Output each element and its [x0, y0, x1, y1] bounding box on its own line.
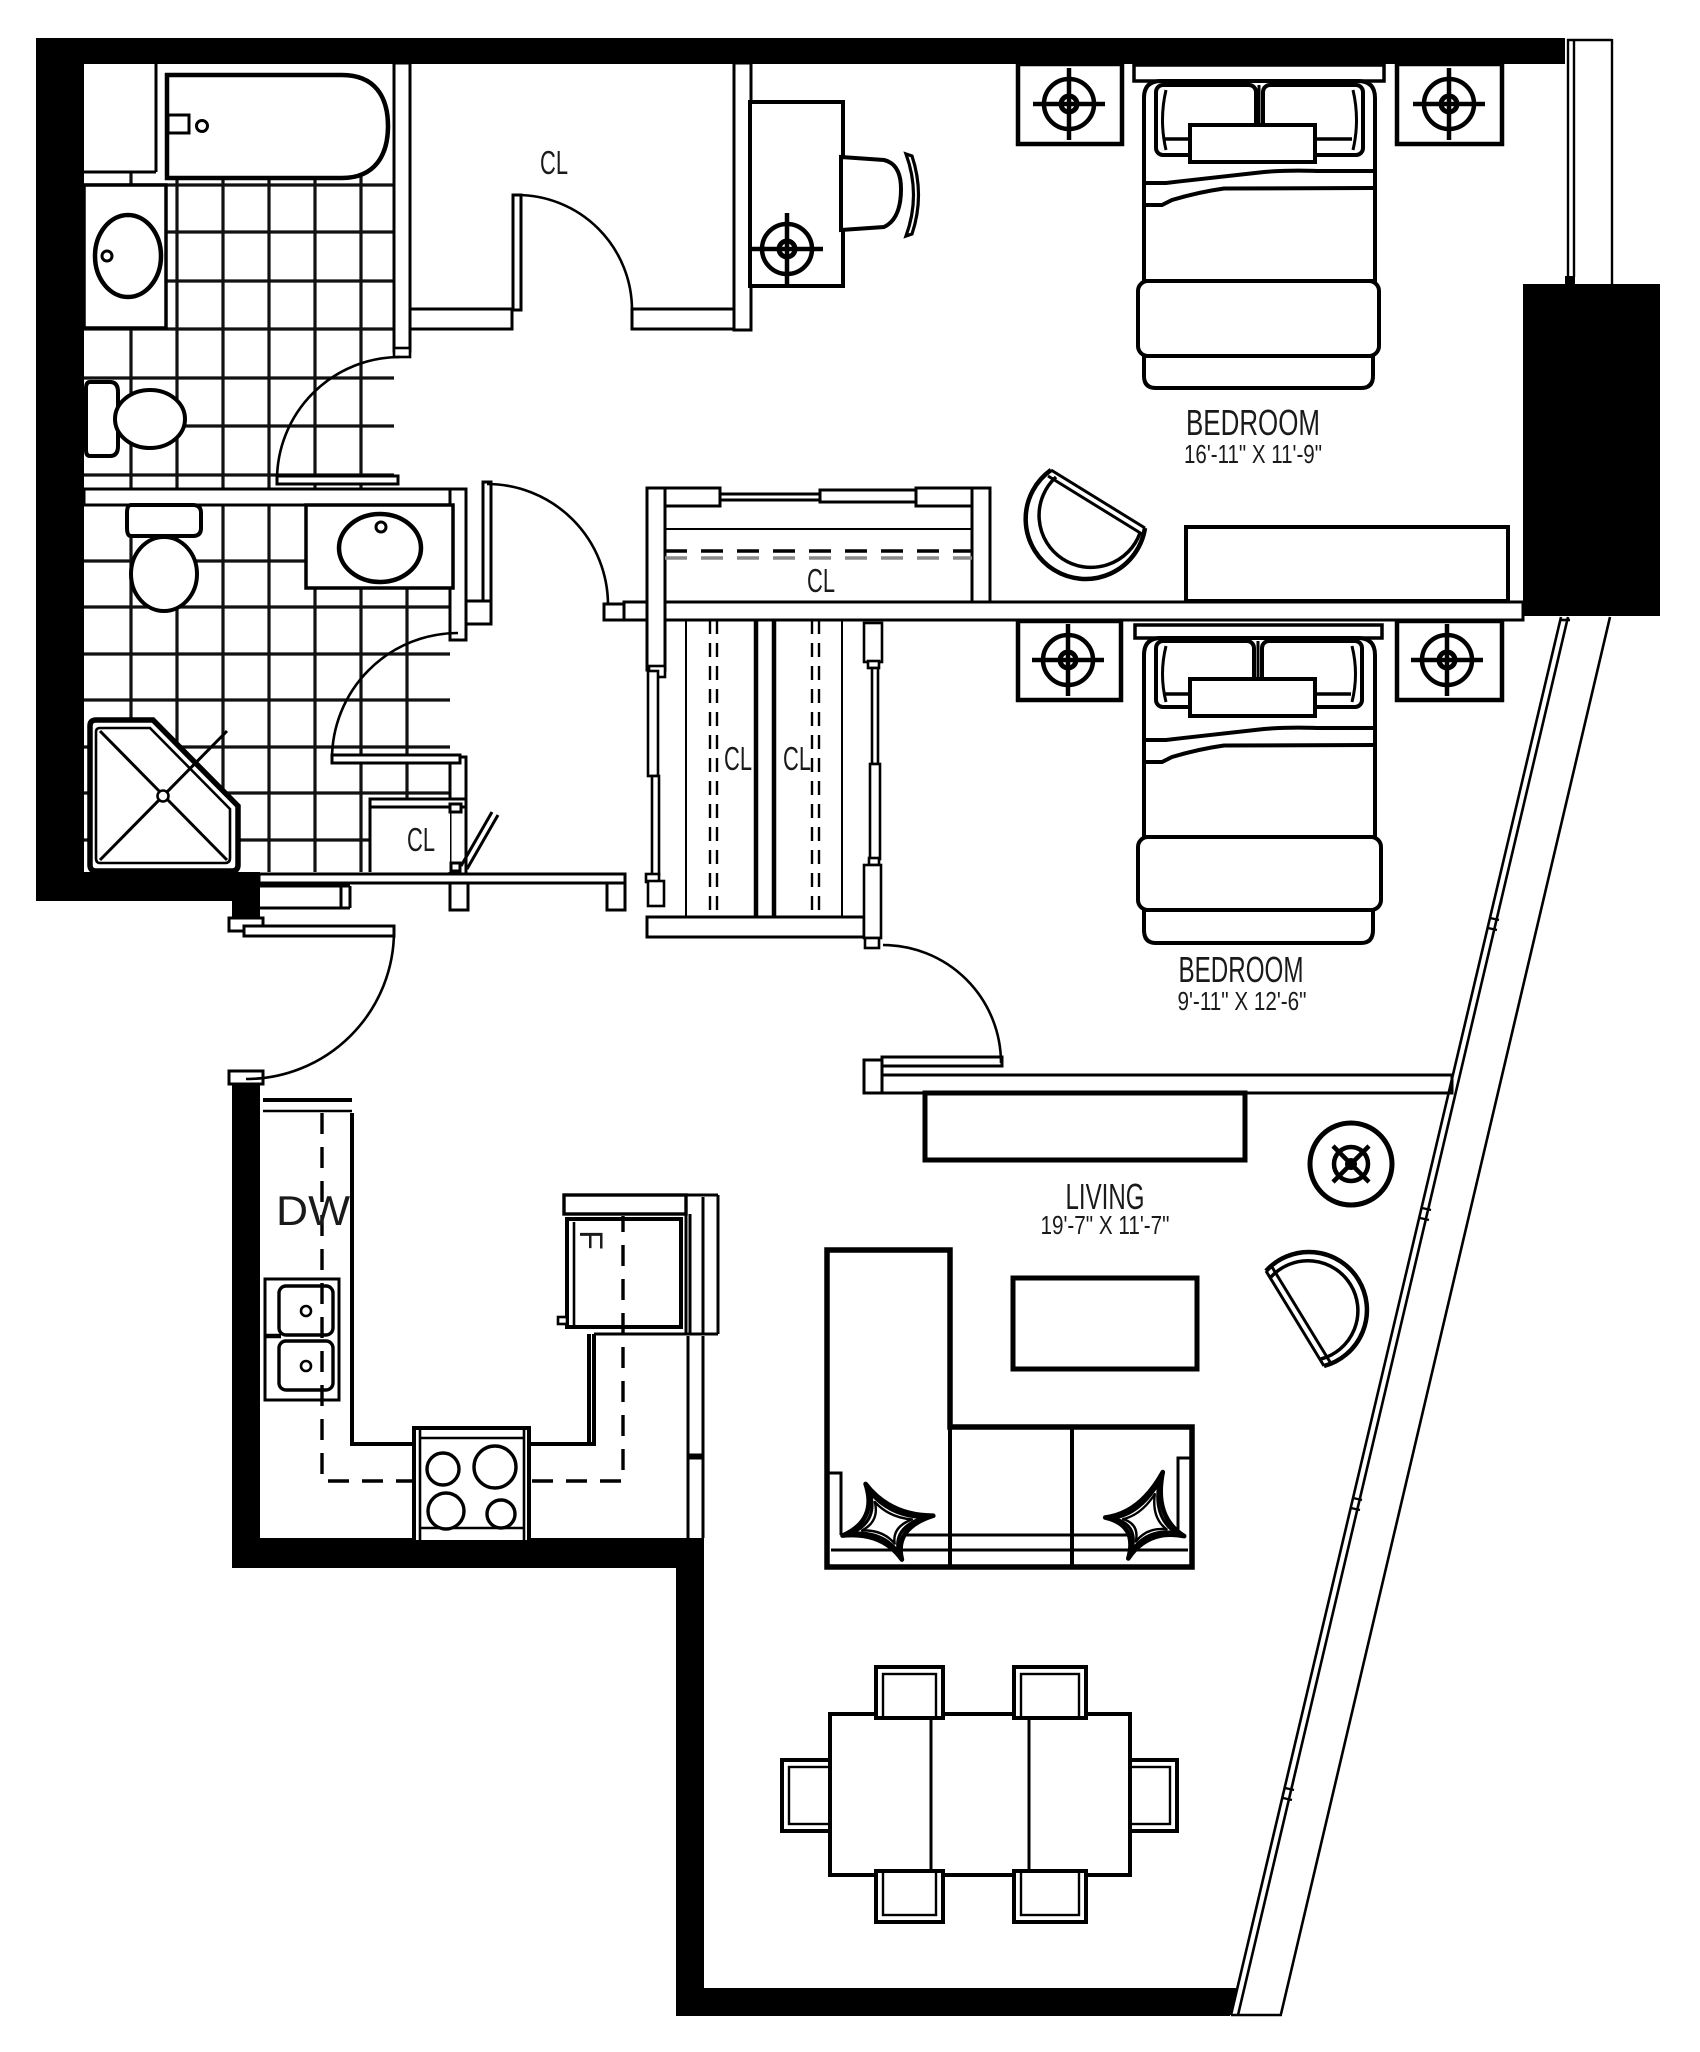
svg-text:CL: CL: [807, 562, 835, 599]
svg-text:CL: CL: [407, 821, 435, 858]
svg-text:19'-7" X 11'-7": 19'-7" X 11'-7": [1041, 1210, 1170, 1240]
svg-text:CL: CL: [724, 740, 752, 777]
svg-text:F: F: [573, 1230, 609, 1250]
svg-text:9'-11" X 12'-6": 9'-11" X 12'-6": [1178, 986, 1307, 1016]
svg-text:CL: CL: [540, 144, 568, 181]
svg-text:16'-11" X 11'-9": 16'-11" X 11'-9": [1184, 439, 1322, 469]
svg-text:CL: CL: [783, 740, 811, 777]
svg-text:DW: DW: [276, 1187, 350, 1234]
svg-text:BEDROOM: BEDROOM: [1179, 949, 1304, 990]
svg-text:BEDROOM: BEDROOM: [1186, 402, 1320, 443]
